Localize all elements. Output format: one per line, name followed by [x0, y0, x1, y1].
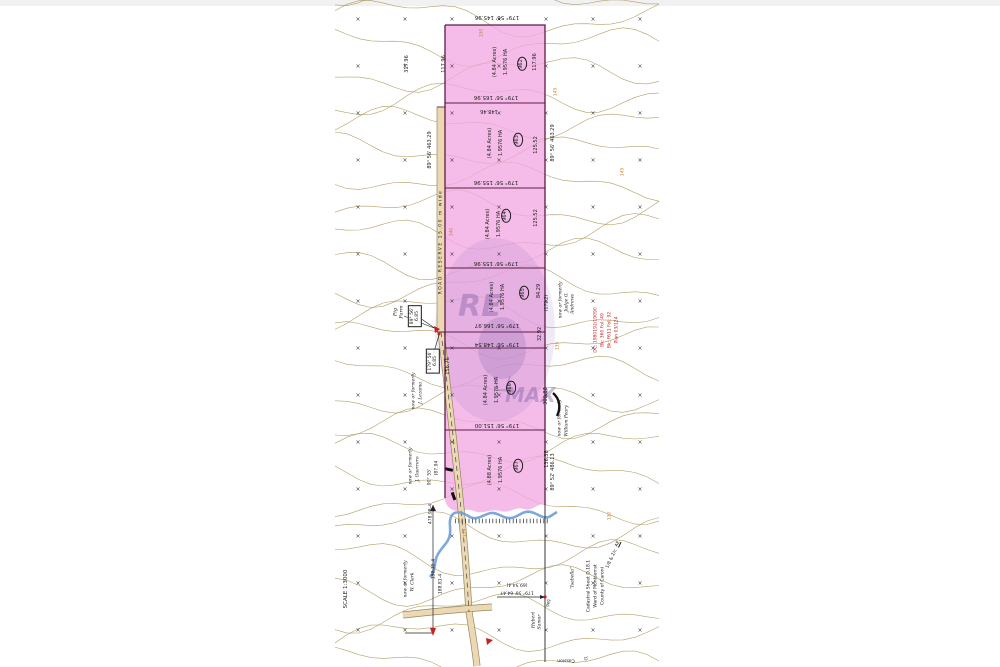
grid-cross: ×: [637, 157, 642, 164]
grid-cross: ×: [402, 63, 407, 70]
grid-cross: ×: [590, 627, 595, 634]
grid-cross: ×: [496, 580, 501, 587]
grid-cross: ×: [449, 298, 454, 305]
grid-cross: ×: [543, 298, 548, 305]
grid-cross: ×: [449, 16, 454, 23]
grid-cross: ×: [402, 110, 407, 117]
grid-cross: ×: [449, 627, 454, 634]
grid-cross: ×: [637, 16, 642, 23]
grid-cross: ×: [402, 486, 407, 493]
contour-line: [335, 540, 659, 576]
grid-cross: ×: [402, 345, 407, 352]
grid-cross: ×: [590, 486, 595, 493]
grid-cross: ×: [637, 251, 642, 258]
grid-cross: ×: [543, 533, 548, 540]
grid-cross: ×: [543, 63, 548, 70]
grid-cross: ×: [590, 110, 595, 117]
grid-cross: ×: [449, 439, 454, 446]
grid-cross: ×: [496, 204, 501, 211]
grid-cross: ×: [590, 157, 595, 164]
grid-cross: ×: [449, 251, 454, 258]
grid-cross: ×: [355, 580, 360, 587]
grid-cross: ×: [402, 251, 407, 258]
grid-cross: ×: [590, 580, 595, 587]
grid-cross: ×: [355, 251, 360, 258]
grid-cross: ×: [637, 439, 642, 446]
grid-cross: ×: [355, 110, 360, 117]
grid-cross: ×: [543, 157, 548, 164]
grid-cross: ×: [590, 16, 595, 23]
grid-cross: ×: [543, 392, 548, 399]
grid-cross: ×: [590, 204, 595, 211]
grid-cross: ×: [402, 580, 407, 587]
grid-cross: ×: [355, 486, 360, 493]
contour-line: [335, 512, 659, 549]
grid-cross: ×: [637, 392, 642, 399]
grid-cross: ×: [496, 486, 501, 493]
survey-drawing: RE MAX ×××××××××××××××××××××××××××××××××…: [0, 0, 1000, 667]
grid-cross: ×: [637, 298, 642, 305]
grid-cross: ×: [449, 486, 454, 493]
grid-cross: ×: [543, 204, 548, 211]
grid-cross: ×: [637, 533, 642, 540]
grid-cross: ×: [449, 533, 454, 540]
watermark-max: MAX: [505, 383, 557, 407]
grid-cross: ×: [590, 345, 595, 352]
grid-cross: ×: [590, 298, 595, 305]
grid-cross: ×: [496, 110, 501, 117]
grid-cross: ×: [637, 627, 642, 634]
grid-cross: ×: [543, 627, 548, 634]
grid-cross: ×: [496, 533, 501, 540]
grid-cross: ×: [637, 580, 642, 587]
grid-cross: ×: [496, 251, 501, 258]
grid-cross: ×: [543, 580, 548, 587]
grid-cross: ×: [637, 110, 642, 117]
grid-cross: ×: [590, 63, 595, 70]
grid-cross: ×: [590, 251, 595, 258]
grid-cross: ×: [496, 63, 501, 70]
grid-cross: ×: [496, 392, 501, 399]
stream: [430, 512, 557, 577]
grid-cross: ×: [449, 110, 454, 117]
grid-cross: ×: [590, 392, 595, 399]
grid-cross: ×: [449, 580, 454, 587]
balloon-icon: [478, 317, 526, 379]
road-reserve: [437, 107, 445, 332]
grid-cross: ×: [449, 345, 454, 352]
grid-cross: ×: [543, 486, 548, 493]
grid-cross: ×: [543, 345, 548, 352]
grid-cross: ×: [402, 392, 407, 399]
grid-cross: ×: [402, 627, 407, 634]
grid-cross: ×: [355, 392, 360, 399]
grid-cross: ×: [355, 439, 360, 446]
grid-cross: ×: [402, 16, 407, 23]
contour-line: [335, 647, 659, 667]
grid-cross: ×: [496, 439, 501, 446]
grid-cross: ×: [543, 16, 548, 23]
grid-cross: ×: [402, 533, 407, 540]
grid-cross: ×: [402, 439, 407, 446]
grid-cross: ×: [402, 298, 407, 305]
grid-cross: ×: [496, 298, 501, 305]
grid-cross: ×: [402, 157, 407, 164]
grid-cross: ×: [496, 345, 501, 352]
grid-cross: ×: [449, 204, 454, 211]
grid-cross: ×: [590, 439, 595, 446]
grid-cross: ×: [449, 63, 454, 70]
grid-cross: ×: [637, 345, 642, 352]
grid-cross: ×: [355, 157, 360, 164]
grid-cross: ×: [543, 439, 548, 446]
grid-cross: ×: [637, 204, 642, 211]
grid-cross: ×: [637, 486, 642, 493]
grid-cross: ×: [449, 392, 454, 399]
grid-cross: ×: [496, 157, 501, 164]
grid-cross: ×: [590, 533, 595, 540]
grid-cross: ×: [355, 16, 360, 23]
grid-cross: ×: [496, 627, 501, 634]
grid-cross: ×: [355, 345, 360, 352]
plan-sheet: RE MAX ×××××××××××××××××××××××××××××××××…: [0, 0, 1000, 667]
grid-cross: ×: [496, 16, 501, 23]
grid-cross: ×: [402, 204, 407, 211]
grid-cross: ×: [355, 627, 360, 634]
grid-cross: ×: [355, 204, 360, 211]
grid-cross: ×: [543, 251, 548, 258]
grid-cross: ×: [543, 110, 548, 117]
grid-cross: ×: [355, 63, 360, 70]
grid-cross: ×: [355, 298, 360, 305]
grid-cross: ×: [637, 63, 642, 70]
grid-cross: ×: [449, 157, 454, 164]
grid-cross: ×: [355, 533, 360, 540]
